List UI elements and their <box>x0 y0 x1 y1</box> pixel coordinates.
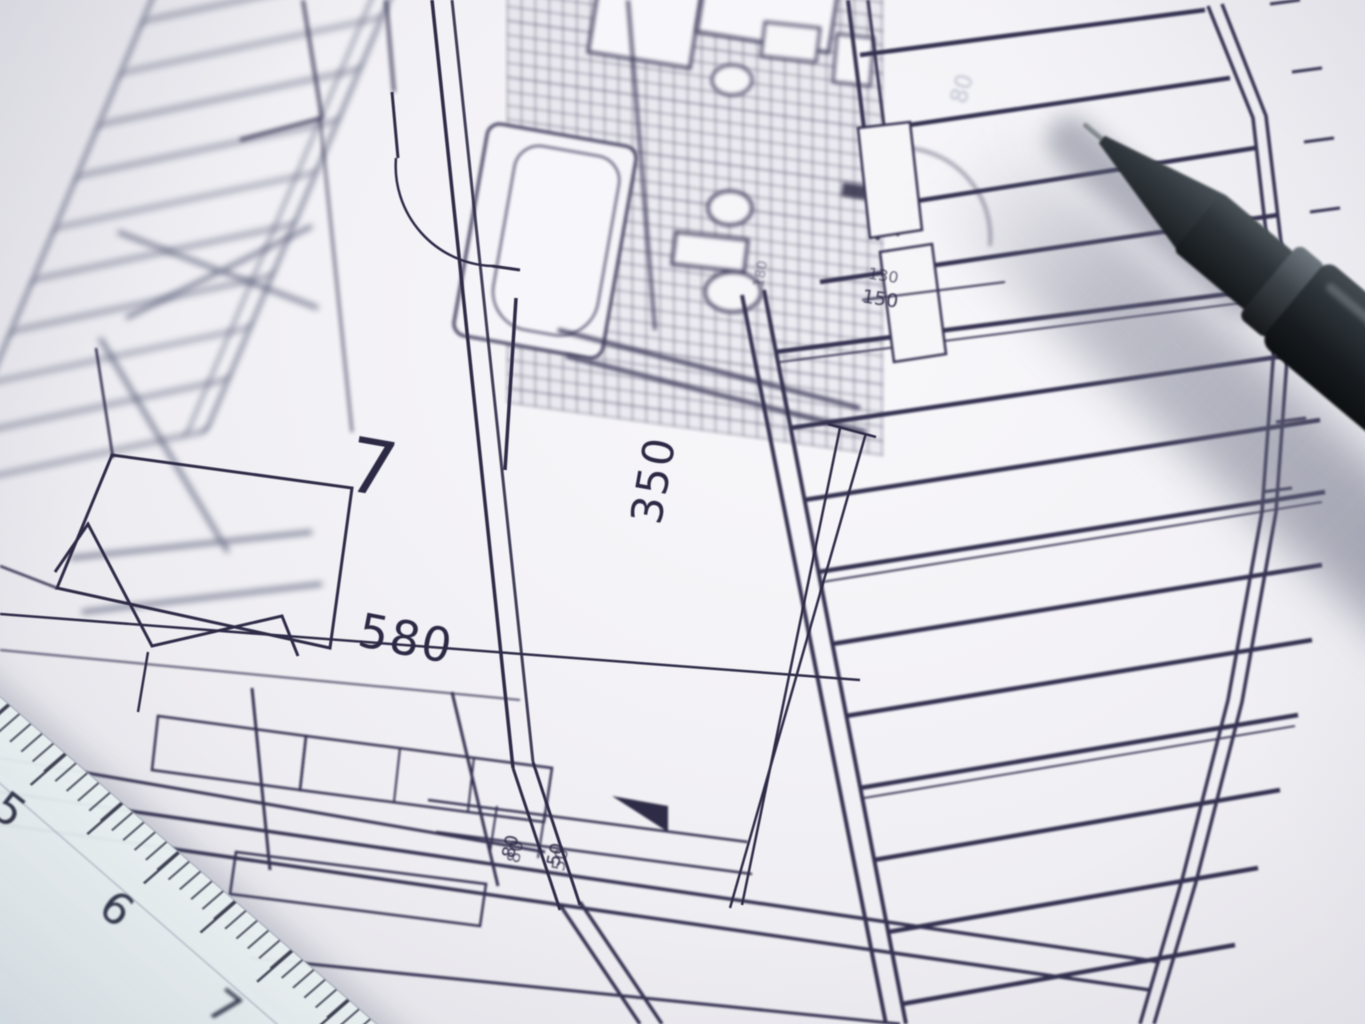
photo-of-floor-plan: 7 580 350 80 50 130 150 180 80 5 6 7 <box>0 0 1365 1024</box>
dimension-50-label: 50 <box>545 842 567 868</box>
ruler-number-7: 7 <box>191 974 257 1024</box>
dimension-150-label: 150 <box>861 287 900 311</box>
dimension-80-label: 80 <box>500 834 522 860</box>
ruler-number-6: 6 <box>83 875 149 942</box>
dimension-130-label: 130 <box>867 266 900 287</box>
